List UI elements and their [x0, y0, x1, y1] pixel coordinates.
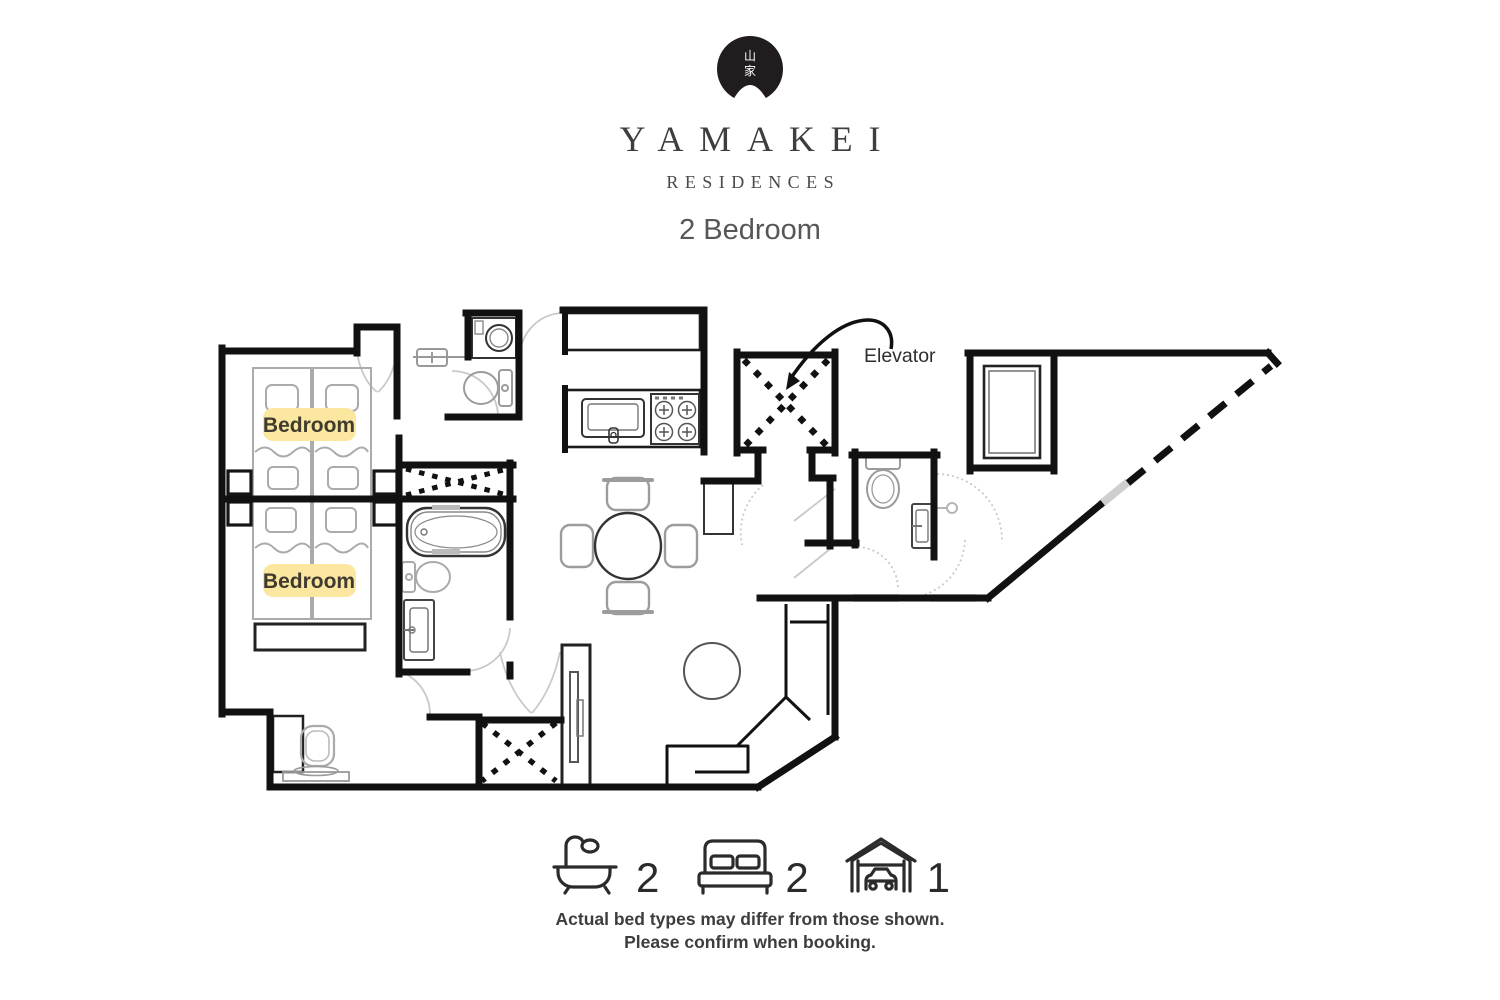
- parking-count: 1: [927, 857, 950, 899]
- bathroom-count: 2: [636, 857, 659, 899]
- bathtub: [407, 508, 505, 556]
- kitchen-counter-upper: [566, 313, 700, 350]
- dining-chair: [607, 582, 649, 614]
- dining-chair: [607, 478, 649, 510]
- bedroom-1-label: Bedroom: [263, 414, 355, 437]
- washing-machine: [472, 318, 516, 358]
- laundry: [472, 318, 516, 358]
- shower-hatch: [406, 469, 507, 495]
- pillow: [266, 508, 296, 532]
- toilet: [866, 456, 900, 508]
- disclaimer-line-2: Please confirm when booking.: [0, 931, 1500, 954]
- disclaimer: Actual bed types may differ from those s…: [0, 908, 1500, 954]
- amenity-bedrooms: 2: [693, 833, 808, 895]
- vanity-cabinet: [912, 504, 932, 548]
- diagonal-sill: [1100, 482, 1128, 505]
- dining-set: [561, 478, 697, 614]
- pillow: [326, 508, 356, 532]
- door-arcs: [357, 313, 1002, 714]
- entry-closet-hatch: [482, 723, 556, 781]
- side-table: [684, 643, 740, 699]
- dining-chair: [561, 525, 593, 567]
- garage-closet: [984, 366, 1040, 458]
- desk: [273, 716, 303, 772]
- shoe-board: [283, 772, 349, 781]
- kitchen-sink: [582, 399, 644, 443]
- elevator-annotation: Elevator: [786, 320, 936, 390]
- stove: [651, 394, 699, 444]
- faucet-handle: [935, 503, 957, 513]
- bedroom-2-label: Bedroom: [263, 570, 355, 593]
- floor-plan-page: 山 家 YAMAKEI RESIDENCES 2 Bedroom: [0, 0, 1500, 1000]
- tv-board: [562, 645, 590, 786]
- walls: [222, 310, 1277, 787]
- toilet-room-hall: [866, 456, 957, 548]
- amenities-row: 2 2 1: [0, 833, 1500, 895]
- pillow: [266, 385, 298, 411]
- desk-area: [273, 716, 349, 781]
- bathroom: [402, 505, 505, 660]
- dining-chair: [665, 525, 697, 567]
- disclaimer-line-1: Actual bed types may differ from those s…: [0, 908, 1500, 931]
- amenity-parking: 1: [843, 833, 950, 895]
- pillow: [326, 385, 358, 411]
- garage-icon: [843, 833, 919, 895]
- elevator-hatch: [744, 360, 828, 447]
- dresser: [255, 624, 365, 650]
- toilet: [402, 562, 450, 592]
- bed-icon: [693, 833, 777, 895]
- dining-table: [595, 513, 661, 579]
- elevator-label: Elevator: [864, 345, 936, 367]
- tall-cabinet: [704, 482, 733, 534]
- amenity-bathrooms: 2: [550, 833, 659, 895]
- vanity-sink: [404, 600, 434, 660]
- bedroom-count: 2: [785, 857, 808, 899]
- bathtub-icon: [550, 833, 628, 895]
- dashed-boundary-wall: [1128, 366, 1271, 483]
